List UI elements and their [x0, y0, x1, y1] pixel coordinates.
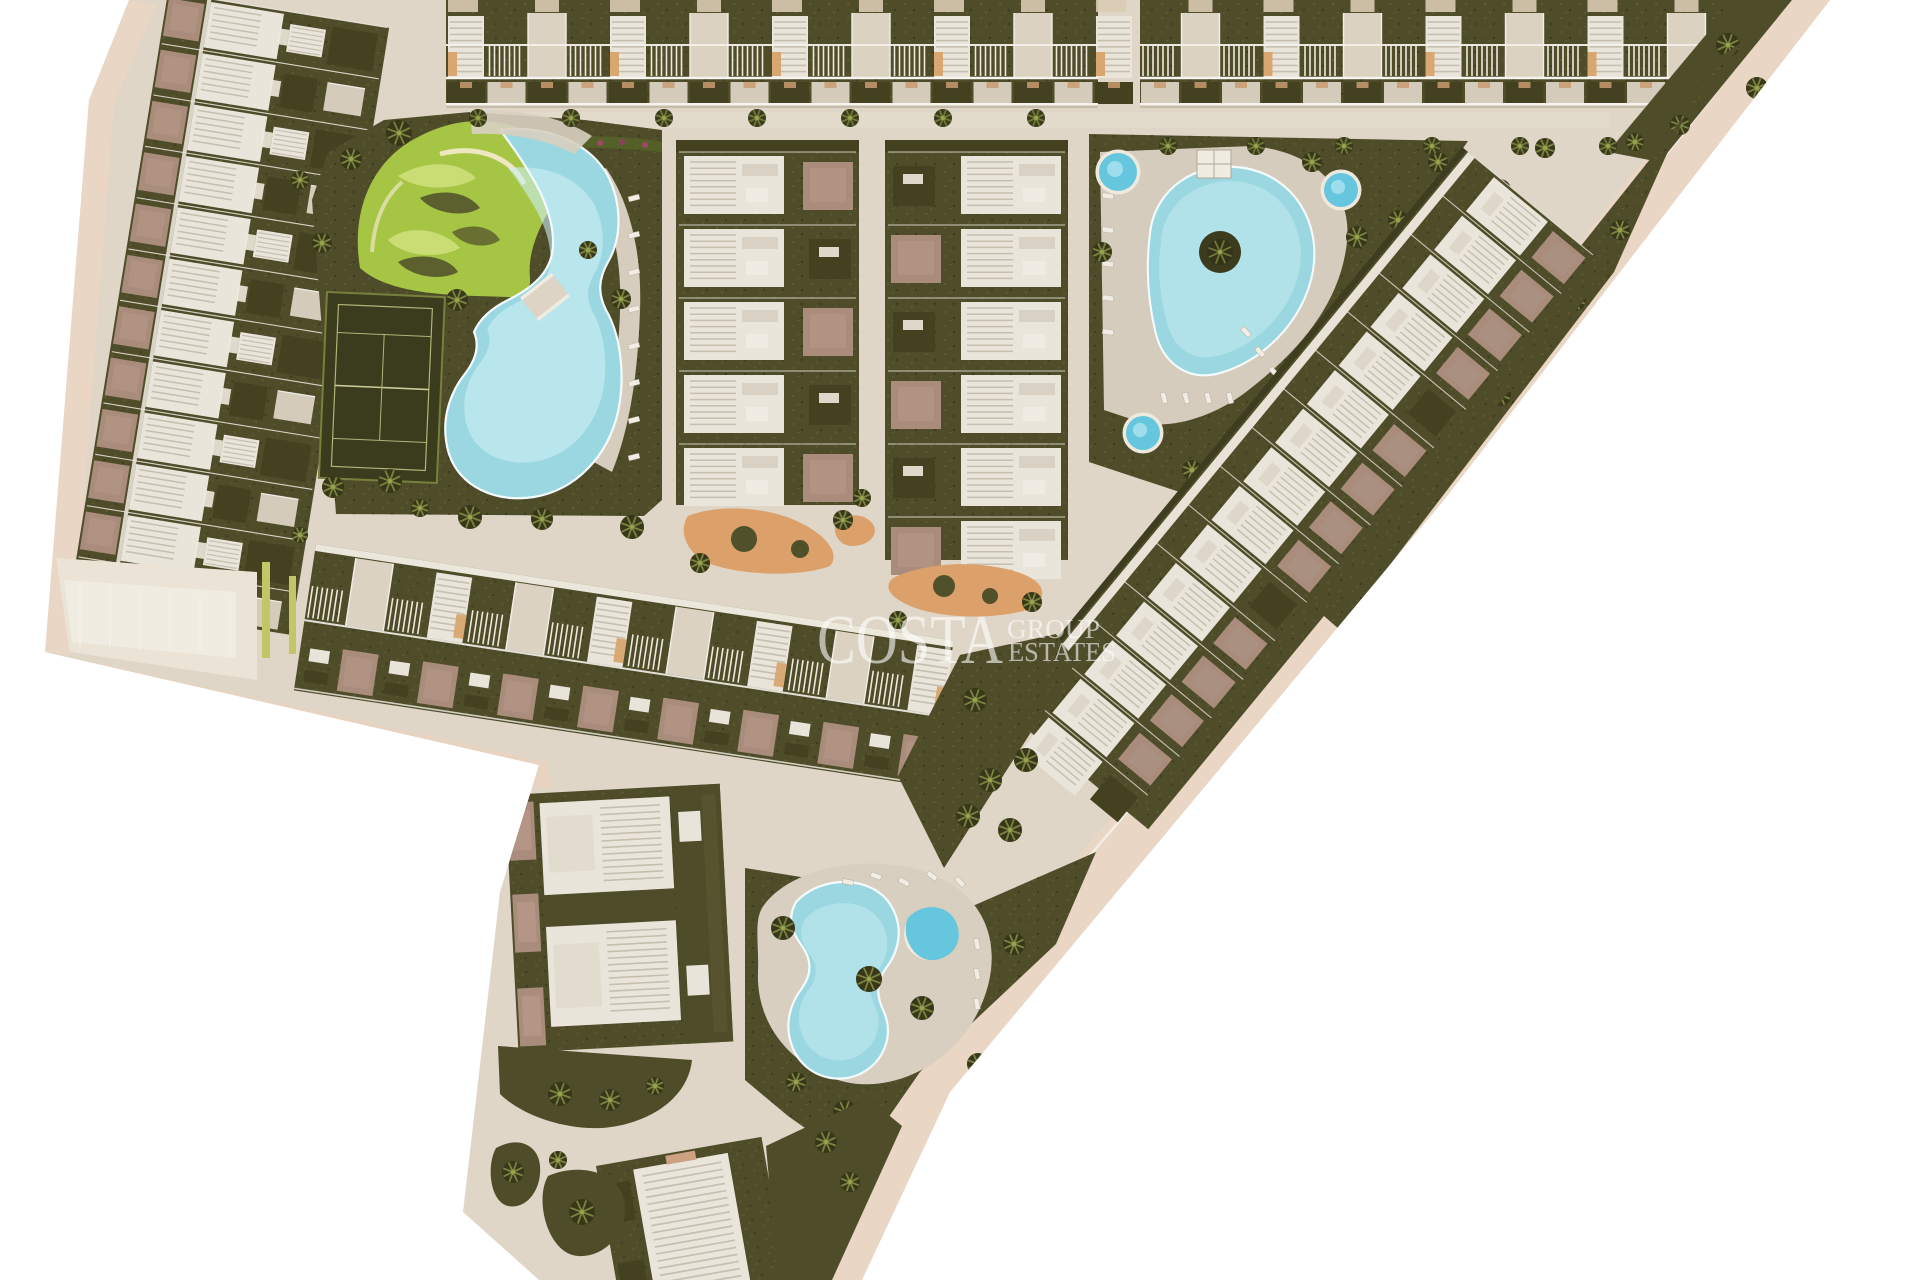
- svg-text:COSTA: COSTA: [817, 602, 1003, 679]
- svg-text:ESTATES: ESTATES: [1008, 637, 1116, 667]
